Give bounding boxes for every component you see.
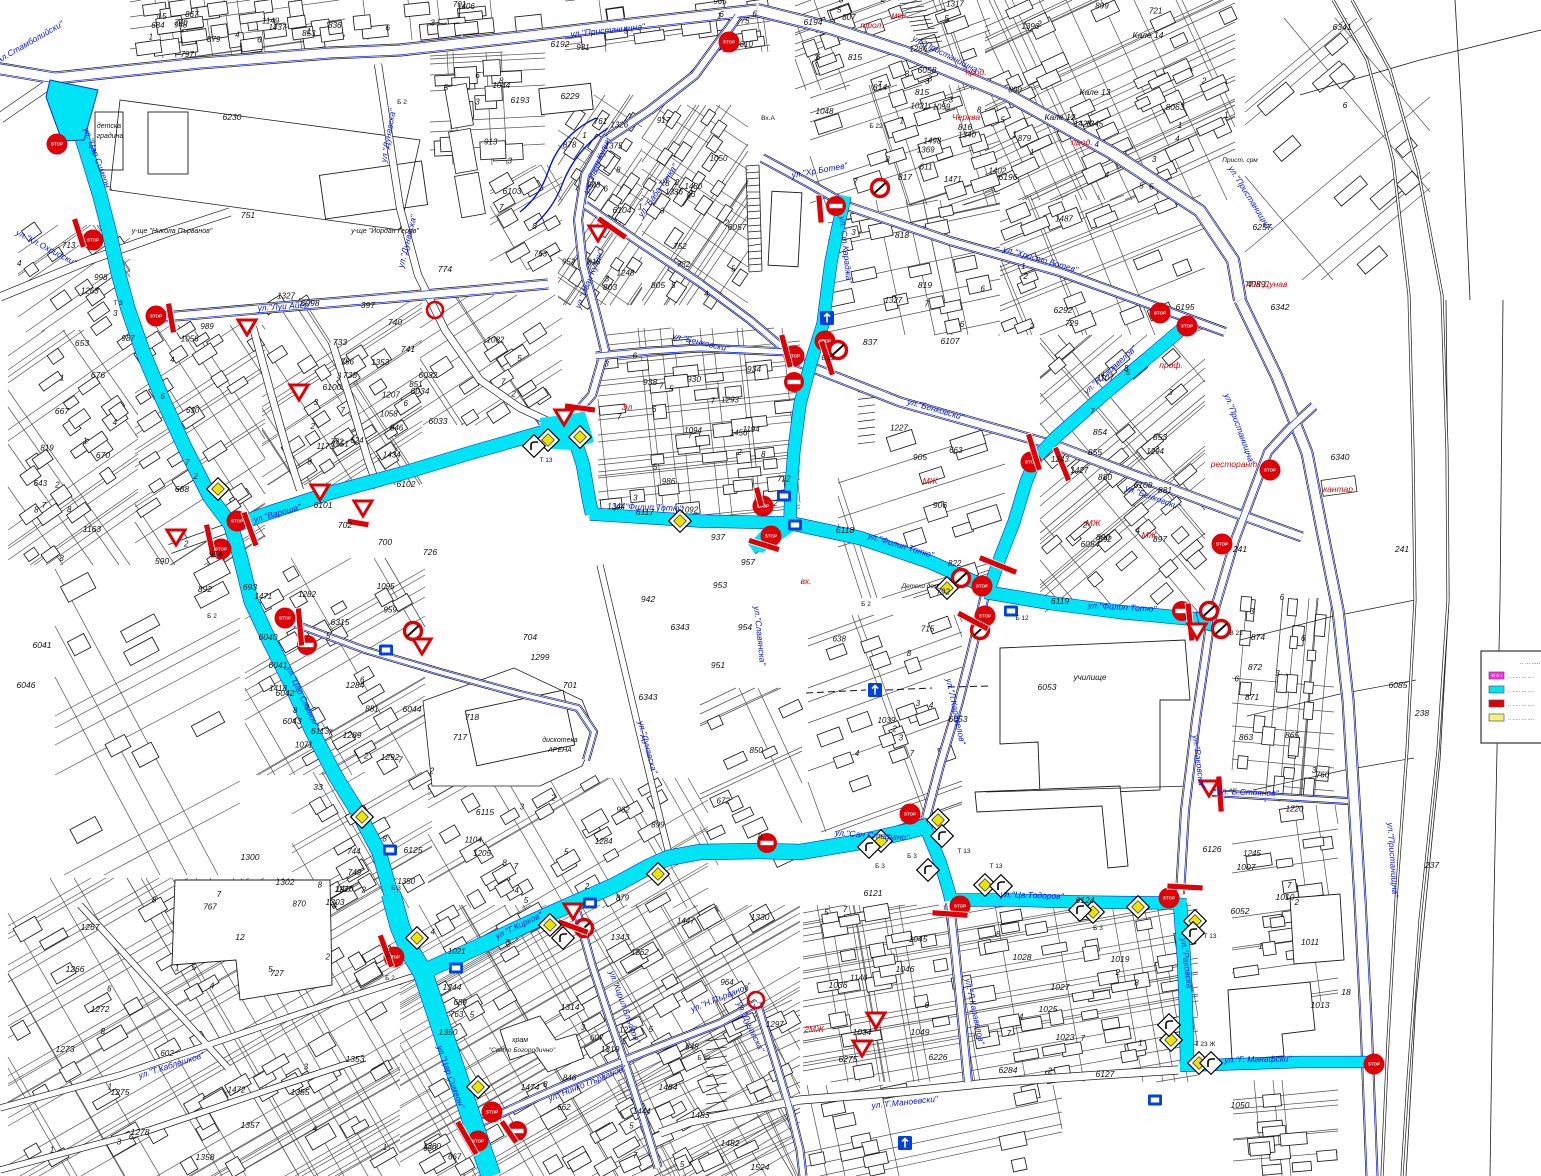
svg-text:7: 7 <box>910 749 915 758</box>
svg-text:917: 917 <box>657 116 671 125</box>
svg-text:6: 6 <box>980 284 985 293</box>
svg-text:трол.: трол. <box>860 20 883 30</box>
svg-text:8: 8 <box>996 930 1001 939</box>
svg-text:6101: 6101 <box>314 500 333 510</box>
svg-text:4: 4 <box>1094 140 1099 149</box>
svg-text:874: 874 <box>1251 632 1265 642</box>
svg-text:Б 22: Б 22 <box>869 123 883 130</box>
svg-text:1484: 1484 <box>659 1082 678 1092</box>
svg-text:836: 836 <box>328 21 342 30</box>
svg-text:8: 8 <box>839 0 844 4</box>
svg-text:959: 959 <box>383 605 397 614</box>
svg-text:6043: 6043 <box>283 716 302 726</box>
svg-text:760: 760 <box>1316 771 1330 780</box>
svg-text:4: 4 <box>235 30 240 39</box>
svg-text:8: 8 <box>686 191 691 200</box>
svg-text:871: 871 <box>1245 692 1259 702</box>
svg-text:878: 878 <box>563 140 577 149</box>
svg-text:6113: 6113 <box>311 726 330 736</box>
svg-text:.. ..... ... ....: .. ..... ... .... <box>1508 688 1534 694</box>
svg-text:5: 5 <box>443 83 448 92</box>
svg-text:6292: 6292 <box>1054 305 1073 315</box>
svg-text:2: 2 <box>1036 19 1042 28</box>
svg-text:1021: 1021 <box>910 101 928 110</box>
svg-text:6315: 6315 <box>331 617 350 627</box>
svg-text:1: 1 <box>1178 120 1183 130</box>
svg-text:6: 6 <box>603 184 608 193</box>
svg-text:1: 1 <box>1021 262 1025 271</box>
svg-text:741: 741 <box>401 344 415 354</box>
svg-text:STOP: STOP <box>231 519 243 524</box>
svg-text:3: 3 <box>851 228 856 237</box>
svg-text:у-ще "Йордан Геров": у-ще "Йордан Геров" <box>350 226 419 235</box>
svg-text:градина: градина <box>97 132 124 140</box>
svg-text:1427: 1427 <box>1070 466 1088 475</box>
svg-text:1: 1 <box>307 27 311 36</box>
svg-text:2: 2 <box>1029 322 1035 331</box>
svg-text:1471: 1471 <box>944 175 962 184</box>
svg-text:1151: 1151 <box>332 439 349 448</box>
svg-text:6: 6 <box>385 24 390 33</box>
svg-text:846: 846 <box>563 1074 577 1083</box>
svg-text:7: 7 <box>398 756 403 765</box>
svg-text:4: 4 <box>929 701 934 710</box>
svg-text:1487: 1487 <box>1055 214 1073 223</box>
svg-text:986: 986 <box>662 477 676 486</box>
svg-text:4: 4 <box>170 356 175 365</box>
svg-text:1300: 1300 <box>423 1142 441 1151</box>
svg-text:899: 899 <box>1095 1 1109 10</box>
svg-text:704: 704 <box>523 632 537 642</box>
svg-text:4: 4 <box>514 886 519 895</box>
svg-text:879: 879 <box>1018 134 1032 143</box>
svg-text:6040: 6040 <box>259 632 278 642</box>
svg-text:1282: 1282 <box>298 590 316 599</box>
svg-text:903: 903 <box>587 181 601 190</box>
svg-text:1267: 1267 <box>81 922 100 932</box>
svg-text:7: 7 <box>853 177 858 186</box>
svg-text:964: 964 <box>720 978 734 987</box>
svg-text:1: 1 <box>60 373 64 382</box>
svg-text:1: 1 <box>638 203 642 212</box>
svg-text:952: 952 <box>562 257 576 266</box>
svg-text:931: 931 <box>576 43 589 52</box>
svg-text:6: 6 <box>403 399 408 408</box>
svg-text:6341: 6341 <box>1333 22 1352 32</box>
svg-text:643: 643 <box>34 479 48 488</box>
svg-text:4: 4 <box>333 901 338 910</box>
svg-text:Т 13: Т 13 <box>539 457 552 464</box>
svg-text:6124: 6124 <box>1076 895 1095 905</box>
svg-text:867: 867 <box>185 10 199 19</box>
svg-text:6: 6 <box>1234 675 1239 684</box>
svg-text:684: 684 <box>151 21 165 30</box>
svg-text:648: 648 <box>685 1042 699 1051</box>
svg-text:1498: 1498 <box>923 137 941 146</box>
svg-text:715: 715 <box>921 624 935 633</box>
svg-text:"Свето Богородично": "Свето Богородично" <box>489 1046 556 1054</box>
svg-text:1036: 1036 <box>829 980 848 990</box>
svg-text:6: 6 <box>161 392 166 401</box>
svg-text:954: 954 <box>738 622 752 632</box>
svg-text:6: 6 <box>1301 634 1306 643</box>
svg-text:детска: детска <box>97 122 121 130</box>
svg-text:3: 3 <box>605 274 610 283</box>
svg-text:1248: 1248 <box>617 269 635 278</box>
svg-text:672: 672 <box>717 796 731 805</box>
svg-text:756: 756 <box>341 358 355 367</box>
svg-text:1: 1 <box>717 11 721 20</box>
svg-text:1045: 1045 <box>909 934 928 944</box>
svg-text:6098: 6098 <box>301 298 320 308</box>
svg-text:4: 4 <box>210 982 215 991</box>
svg-text:2: 2 <box>724 219 730 228</box>
svg-text:4: 4 <box>1105 170 1110 179</box>
svg-text:1327: 1327 <box>884 296 902 305</box>
svg-text:2: 2 <box>183 540 189 549</box>
svg-text:1: 1 <box>149 33 153 42</box>
svg-text:6102: 6102 <box>397 479 416 489</box>
svg-text:846: 846 <box>390 424 404 433</box>
svg-text:1358: 1358 <box>196 1152 215 1162</box>
svg-text:855: 855 <box>1088 447 1102 457</box>
svg-text:6127: 6127 <box>1096 1069 1115 1079</box>
svg-text:890: 890 <box>1008 86 1022 95</box>
svg-text:1262: 1262 <box>631 948 649 957</box>
svg-text:237: 237 <box>1424 860 1439 870</box>
svg-text:2: 2 <box>1293 898 1299 907</box>
svg-text:6118: 6118 <box>836 525 855 535</box>
svg-text:3: 3 <box>1152 155 1157 164</box>
svg-text:899: 899 <box>651 821 665 830</box>
svg-text:905: 905 <box>913 452 927 462</box>
svg-text:ресторант: ресторант <box>1210 459 1258 469</box>
svg-text:782: 782 <box>677 260 691 269</box>
svg-text:6104: 6104 <box>613 205 632 215</box>
svg-text:1013: 1013 <box>1311 1000 1330 1010</box>
svg-text:6108: 6108 <box>1134 480 1153 490</box>
svg-text:954: 954 <box>209 550 223 559</box>
svg-text:1227: 1227 <box>619 1026 637 1035</box>
svg-text:892: 892 <box>198 584 212 594</box>
svg-text:740: 740 <box>388 317 402 327</box>
svg-text:1330: 1330 <box>751 912 770 922</box>
svg-text:8: 8 <box>616 165 621 174</box>
svg-text:702: 702 <box>338 520 352 530</box>
svg-text:ТПК Дунав: ТПК Дунав <box>1245 279 1288 289</box>
svg-text:проф.: проф. <box>1159 360 1183 370</box>
svg-text:5: 5 <box>386 950 391 959</box>
svg-text:7: 7 <box>711 396 716 405</box>
svg-text:3: 3 <box>304 1063 309 1072</box>
svg-text:STOP: STOP <box>1181 324 1193 329</box>
svg-text:865: 865 <box>1285 730 1299 740</box>
svg-text:1207: 1207 <box>382 390 400 399</box>
svg-text:7: 7 <box>514 862 519 871</box>
svg-text:5: 5 <box>624 27 629 36</box>
svg-text:3: 3 <box>520 802 525 811</box>
svg-text:Б 2: Б 2 <box>397 99 407 106</box>
svg-text:752: 752 <box>673 242 687 251</box>
svg-text:STOP: STOP <box>723 40 735 45</box>
svg-text:3: 3 <box>1250 607 1255 616</box>
svg-text:5: 5 <box>837 6 842 15</box>
svg-text:3: 3 <box>905 69 910 78</box>
svg-text:8: 8 <box>100 1027 105 1036</box>
svg-text:1340: 1340 <box>958 130 976 139</box>
svg-text:4: 4 <box>312 1125 317 1134</box>
svg-text:3: 3 <box>314 398 319 407</box>
svg-text:6: 6 <box>475 71 480 80</box>
svg-text:7: 7 <box>217 890 222 899</box>
svg-text:3: 3 <box>113 309 118 318</box>
svg-text:1082: 1082 <box>487 335 505 344</box>
svg-text:854: 854 <box>1093 427 1107 437</box>
svg-text:Кале 12: Кале 12 <box>1045 112 1076 122</box>
svg-text:1071: 1071 <box>295 740 313 749</box>
svg-text:1402: 1402 <box>988 167 1006 176</box>
svg-text:3: 3 <box>949 95 954 104</box>
svg-text:Т 13: Т 13 <box>989 863 1002 870</box>
svg-text:5: 5 <box>944 14 949 23</box>
svg-text:6229: 6229 <box>561 91 580 101</box>
svg-text:837: 837 <box>863 337 877 347</box>
svg-text:Кале 13: Кале 13 <box>1080 87 1111 97</box>
svg-text:7: 7 <box>1287 881 1292 890</box>
svg-text:6226: 6226 <box>929 1052 948 1062</box>
svg-text:6119: 6119 <box>1051 596 1070 606</box>
svg-text:6: 6 <box>360 675 365 684</box>
svg-text:749: 749 <box>348 868 362 877</box>
svg-text:1353: 1353 <box>346 1054 365 1064</box>
svg-text:1: 1 <box>83 436 87 445</box>
svg-text:1104: 1104 <box>465 835 483 844</box>
svg-text:6: 6 <box>1343 100 1348 110</box>
svg-text:6103: 6103 <box>503 186 522 196</box>
svg-text:1444: 1444 <box>633 1107 651 1116</box>
svg-text:738: 738 <box>343 370 357 380</box>
svg-text:2: 2 <box>736 448 742 457</box>
svg-text:8: 8 <box>59 554 64 563</box>
svg-text:Т 3: Т 3 <box>113 300 123 307</box>
svg-text:717: 717 <box>453 732 467 742</box>
svg-text:6046: 6046 <box>17 680 36 690</box>
svg-text:3: 3 <box>660 206 665 215</box>
svg-text:4: 4 <box>17 259 22 268</box>
svg-text:8: 8 <box>502 858 507 867</box>
svg-text:5: 5 <box>326 632 331 641</box>
svg-text:Б 2: Б 2 <box>207 613 217 620</box>
svg-text:Черква: Черква <box>952 112 980 122</box>
svg-text:1050: 1050 <box>1231 1100 1250 1110</box>
svg-text:STOP: STOP <box>51 142 63 147</box>
svg-text:872: 872 <box>1248 662 1262 672</box>
svg-text:5: 5 <box>622 1037 627 1046</box>
svg-text:1021: 1021 <box>448 947 466 956</box>
svg-text:5: 5 <box>1000 116 1005 125</box>
svg-text:6230: 6230 <box>223 112 242 122</box>
svg-text:6: 6 <box>633 352 638 361</box>
svg-text:33: 33 <box>313 782 323 792</box>
svg-text:1011: 1011 <box>1301 937 1320 947</box>
svg-text:В 22: В 22 <box>1229 630 1243 637</box>
svg-text:822: 822 <box>948 559 962 568</box>
svg-text:6: 6 <box>1280 593 1285 602</box>
svg-text:1314: 1314 <box>561 1002 580 1012</box>
svg-text:5: 5 <box>192 963 197 972</box>
svg-text:3: 3 <box>916 699 921 708</box>
svg-text:1: 1 <box>1138 1038 1142 1047</box>
svg-text:241: 241 <box>1232 544 1247 554</box>
svg-text:6117: 6117 <box>636 507 655 517</box>
svg-text:STOP: STOP <box>279 616 291 621</box>
svg-text:1044: 1044 <box>492 81 510 90</box>
svg-text:722: 722 <box>777 475 791 484</box>
svg-text:4: 4 <box>704 289 709 298</box>
svg-text:1137: 1137 <box>335 885 353 894</box>
svg-text:1471: 1471 <box>254 592 272 601</box>
svg-text:989: 989 <box>200 322 214 331</box>
svg-text:881: 881 <box>1158 485 1172 495</box>
svg-text:6257: 6257 <box>1253 222 1272 232</box>
svg-text:938: 938 <box>643 377 657 387</box>
svg-text:965: 965 <box>713 0 727 6</box>
svg-text:2: 2 <box>325 953 331 962</box>
svg-text:кантар: кантар <box>1323 484 1353 494</box>
svg-text:913: 913 <box>484 137 498 146</box>
svg-text:8: 8 <box>505 938 510 947</box>
svg-text:6: 6 <box>257 36 262 45</box>
svg-text:880: 880 <box>1098 472 1112 482</box>
svg-text:1092: 1092 <box>680 506 698 515</box>
svg-text:STOP: STOP <box>976 584 988 589</box>
svg-text:1336: 1336 <box>665 188 683 197</box>
svg-text:1107: 1107 <box>1097 374 1115 383</box>
svg-text:2: 2 <box>1201 76 1207 85</box>
svg-text:6340: 6340 <box>1331 452 1350 462</box>
svg-text:688: 688 <box>175 484 189 494</box>
svg-text:МЖ: МЖ <box>1086 518 1102 528</box>
svg-text:1023: 1023 <box>1056 1032 1075 1042</box>
svg-text:7: 7 <box>633 1151 638 1160</box>
svg-text:8: 8 <box>307 458 312 467</box>
svg-text:815: 815 <box>915 87 929 97</box>
svg-text:7: 7 <box>501 377 506 386</box>
svg-text:4: 4 <box>430 928 435 937</box>
svg-text:718: 718 <box>465 712 479 722</box>
svg-text:763: 763 <box>534 249 548 258</box>
svg-text:5: 5 <box>1139 182 1144 191</box>
svg-text:Эл: Эл <box>622 402 633 412</box>
svg-text:5: 5 <box>731 264 736 273</box>
svg-text:1049: 1049 <box>911 1027 930 1037</box>
svg-text:7: 7 <box>617 413 622 422</box>
svg-text:1019: 1019 <box>1111 954 1130 964</box>
svg-text:12: 12 <box>235 932 245 942</box>
svg-text:1524: 1524 <box>751 1162 770 1172</box>
svg-text:3: 3 <box>1275 669 1280 678</box>
svg-text:853: 853 <box>1153 432 1167 442</box>
svg-text:3: 3 <box>430 19 435 28</box>
svg-text:8: 8 <box>532 222 537 231</box>
svg-text:6053: 6053 <box>949 714 968 724</box>
svg-text:6: 6 <box>691 190 696 199</box>
svg-text:.. ..... ... ....: .. ..... ... .... <box>1508 674 1534 680</box>
svg-text:953: 953 <box>713 580 727 590</box>
svg-text:729: 729 <box>1065 319 1079 328</box>
svg-text:7: 7 <box>843 905 848 914</box>
svg-text:1480: 1480 <box>684 182 702 191</box>
svg-text:1050: 1050 <box>710 154 728 163</box>
svg-text:1286: 1286 <box>909 44 927 53</box>
svg-text:МЖ: МЖ <box>1142 530 1158 540</box>
svg-text:6126: 6126 <box>1203 844 1222 854</box>
svg-text:5: 5 <box>671 281 676 290</box>
svg-text:5: 5 <box>669 384 674 393</box>
svg-text:3: 3 <box>117 1137 122 1146</box>
svg-text:1245: 1245 <box>1243 849 1261 858</box>
svg-text:.. ..... ... ....: .. ..... ... .... <box>1508 716 1534 722</box>
svg-text:дискотека: дискотека <box>542 736 577 744</box>
svg-text:667: 667 <box>55 406 69 416</box>
svg-text:STOP: STOP <box>472 1139 484 1144</box>
svg-text:6041: 6041 <box>269 660 288 670</box>
svg-text:701: 701 <box>563 680 577 690</box>
svg-text:3: 3 <box>475 97 480 106</box>
svg-text:8063: 8063 <box>1166 102 1185 112</box>
svg-text:Кале 14: Кале 14 <box>1133 30 1164 40</box>
svg-text:6107: 6107 <box>941 336 960 346</box>
svg-text:819: 819 <box>40 444 54 453</box>
svg-text:611: 611 <box>920 163 933 172</box>
svg-text:998: 998 <box>94 273 108 282</box>
svg-text:5: 5 <box>629 1122 634 1131</box>
svg-text:1434: 1434 <box>383 450 401 459</box>
svg-text:1220: 1220 <box>1286 804 1304 813</box>
svg-text:Б 3: Б 3 <box>1093 925 1103 932</box>
svg-text:6194: 6194 <box>804 17 823 27</box>
svg-text:.. ..... ... ....: .. ..... ... .... <box>1508 702 1534 708</box>
svg-text:8: 8 <box>318 881 323 890</box>
svg-text:2: 2 <box>550 793 556 802</box>
svg-text:2: 2 <box>360 885 366 894</box>
svg-text:2: 2 <box>1115 968 1121 977</box>
svg-text:Т 23 Ж: Т 23 Ж <box>1195 1041 1216 1048</box>
svg-text:1243: 1243 <box>1051 455 1069 464</box>
svg-text:1319: 1319 <box>601 1044 620 1054</box>
svg-text:667: 667 <box>448 1152 462 1161</box>
svg-text:653: 653 <box>75 338 89 348</box>
svg-text:1369: 1369 <box>917 146 935 155</box>
svg-text:7: 7 <box>659 381 664 390</box>
svg-text:2: 2 <box>310 422 316 431</box>
svg-text:763: 763 <box>450 1010 464 1019</box>
svg-text:7: 7 <box>341 406 346 415</box>
svg-text:STOP: STOP <box>979 614 991 619</box>
svg-text:8: 8 <box>907 649 912 658</box>
svg-text:662: 662 <box>557 1103 571 1112</box>
svg-text:751: 751 <box>241 210 255 220</box>
svg-text:4: 4 <box>113 418 118 427</box>
svg-text:1294: 1294 <box>1146 447 1164 456</box>
svg-text:мсв.: мсв. <box>892 10 909 20</box>
svg-text:1289: 1289 <box>343 730 362 740</box>
svg-text:5: 5 <box>1149 182 1154 191</box>
svg-text:6041: 6041 <box>33 640 52 650</box>
svg-text:храм: храм <box>511 1037 528 1044</box>
svg-text:1: 1 <box>899 117 903 126</box>
svg-text:прод.: прод. <box>965 67 986 77</box>
